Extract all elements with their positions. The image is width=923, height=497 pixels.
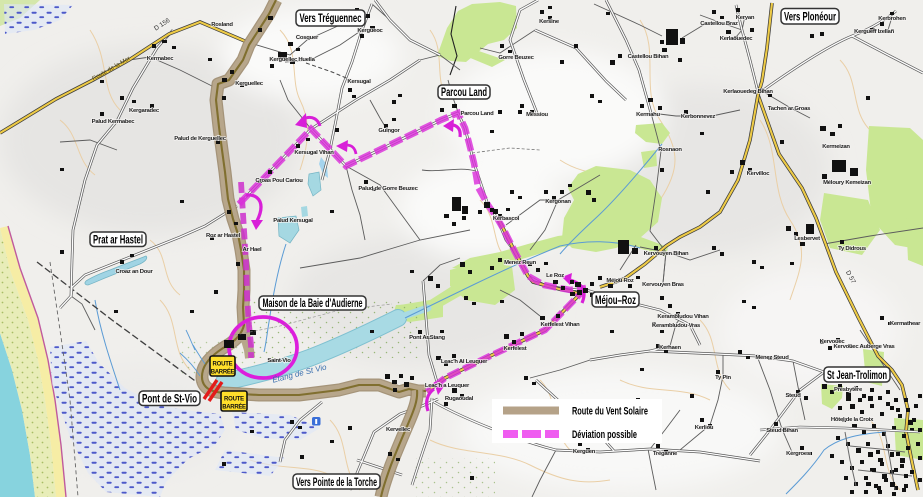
svg-text:Kervilloc: Kervilloc [747, 171, 771, 177]
svg-text:Lesbervet: Lesbervet [794, 236, 820, 242]
svg-text:Leac'h a Leuquer: Leac'h a Leuquer [425, 383, 470, 389]
svg-text:Kergroes: Kergroes [786, 451, 811, 457]
svg-text:Méjou–Roz: Méjou–Roz [595, 293, 636, 307]
svg-text:Castellou Bihan: Castellou Bihan [628, 54, 669, 60]
svg-text:Kergonan: Kergonan [545, 199, 571, 205]
svg-text:Vers Pointe de la Torche: Vers Pointe de la Torche [296, 475, 377, 489]
svg-text:Kervellec: Kervellec [386, 427, 411, 433]
svg-text:Kerfelest Vihan: Kerfelest Vihan [540, 322, 580, 328]
svg-text:Route du Vent Solaire: Route du Vent Solaire [572, 406, 648, 418]
svg-text:Menez Reun: Menez Reun [504, 260, 537, 266]
svg-text:St Jean-Trolimon: St Jean-Trolimon [827, 368, 887, 382]
svg-text:Kervouyen Bihan: Kervouyen Bihan [644, 251, 689, 257]
svg-text:Tréganne: Tréganne [653, 451, 678, 457]
svg-text:Kerlaouedeg Bihan: Kerlaouedeg Bihan [723, 89, 773, 95]
svg-text:Kersine: Kersine [539, 19, 560, 25]
svg-text:Prat ar Hastel: Prat ar Hastel [93, 233, 143, 247]
svg-text:Parcou Land: Parcou Land [461, 111, 495, 117]
svg-text:Kerambludou Vras: Kerambludou Vras [652, 323, 701, 329]
svg-text:ROUTE: ROUTE [212, 362, 232, 368]
svg-text:Steud: Steud [785, 393, 801, 399]
svg-text:Kerbascol: Kerbascol [493, 216, 520, 222]
svg-text:Palud de Gorre Beuzec: Palud de Gorre Beuzec [358, 186, 418, 192]
svg-text:Méloury Kemeizan: Méloury Kemeizan [823, 180, 871, 186]
svg-text:Croaz an Dour: Croaz an Dour [115, 269, 153, 275]
svg-text:Cosquer: Cosquer [296, 35, 319, 41]
svg-text:Palud Kermabec: Palud Kermabec [92, 119, 136, 125]
svg-text:Rugaoudal: Rugaoudal [445, 396, 474, 402]
svg-text:Kergaradec: Kergaradec [129, 108, 160, 114]
svg-text:Saint-Vio: Saint-Vio [267, 358, 291, 364]
svg-text:Messiou: Messiou [526, 112, 548, 118]
svg-text:Kermathear: Kermathear [890, 321, 921, 327]
svg-text:Kerambludou Vihan: Kerambludou Vihan [657, 314, 709, 320]
svg-text:Kermabec: Kermabec [147, 56, 174, 62]
svg-text:Menez Steud: Menez Steud [755, 355, 789, 361]
svg-text:Kerliou: Kerliou [695, 425, 714, 431]
svg-text:Rosnaon: Rosnaon [658, 147, 682, 153]
svg-text:BARRÉE: BARRÉE [211, 368, 235, 376]
svg-text:BARRÉE: BARRÉE [222, 403, 246, 411]
svg-text:Gorre Beuzec: Gorre Beuzec [498, 55, 534, 61]
svg-text:Kerbonnevez: Kerbonnevez [681, 114, 716, 120]
svg-text:Ty Pin: Ty Pin [715, 375, 731, 381]
svg-text:Méjou Roz: Méjou Roz [606, 278, 634, 284]
svg-text:Tachen ar Groas: Tachen ar Groas [768, 106, 811, 112]
svg-text:Kerguellec: Kerguellec [235, 81, 264, 87]
svg-text:Le Roz: Le Roz [546, 273, 564, 279]
svg-text:Palud Kersugal: Palud Kersugal [273, 218, 313, 224]
svg-text:Kerfelest: Kerfelest [504, 346, 527, 352]
svg-text:Pont Ar Stang: Pont Ar Stang [409, 335, 445, 341]
svg-text:Kersugal Vihan: Kersugal Vihan [294, 150, 334, 156]
svg-text:Ty Didrous: Ty Didrous [838, 246, 867, 252]
svg-text:ROUTE: ROUTE [224, 397, 244, 403]
svg-text:Kervouec Auberge Vras: Kervouec Auberge Vras [834, 344, 896, 350]
svg-text:Kermeizan: Kermeizan [822, 144, 850, 150]
svg-text:Kerhaen: Kerhaen [659, 345, 681, 351]
svg-text:Vers Plonéour: Vers Plonéour [784, 10, 836, 24]
svg-text:Ar Hael: Ar Hael [243, 247, 262, 253]
svg-text:Kerguellec Huella: Kerguellec Huella [269, 57, 315, 63]
svg-text:Steud Bihan: Steud Bihan [766, 428, 798, 434]
svg-text:Kergueoc: Kergueoc [357, 28, 383, 34]
svg-text:Kerlaouedec: Kerlaouedec [720, 36, 754, 42]
svg-text:Palud de Kerguellec: Palud de Kerguellec [174, 136, 227, 142]
svg-text:Kersugal: Kersugal [347, 79, 371, 85]
svg-text:Kerguen: Kerguen [573, 449, 596, 455]
svg-text:Déviation possible: Déviation possible [572, 429, 637, 441]
svg-text:Keryan: Keryan [736, 15, 755, 21]
svg-text:Presbytère: Presbytère [834, 387, 863, 393]
svg-text:Rosland: Rosland [211, 22, 233, 28]
svg-text:Parcou Land: Parcou Land [441, 85, 487, 99]
svg-text:Hôtel de la Croix: Hôtel de la Croix [831, 417, 874, 423]
svg-text:Roz ar Hastel: Roz ar Hastel [206, 233, 241, 239]
svg-text:Vers Tréguennec: Vers Tréguennec [300, 11, 362, 25]
svg-text:Kerbrohen: Kerbrohen [878, 16, 906, 22]
svg-text:Maison de la Baie d'Audierne: Maison de la Baie d'Audierne [263, 296, 363, 310]
svg-text:Croas Poul Cariou: Croas Poul Cariou [255, 178, 303, 184]
svg-text:Pont de St-Vio: Pont de St-Vio [142, 392, 197, 406]
svg-text:Kermahu: Kermahu [636, 112, 660, 118]
svg-text:Kervouyen Bras: Kervouyen Bras [642, 282, 685, 288]
svg-text:Guingor: Guingor [378, 128, 400, 134]
svg-text:Kergueff Izellañ: Kergueff Izellañ [854, 29, 895, 35]
svg-text:Leac'h Al Leuquer: Leac'h Al Leuquer [441, 359, 488, 365]
svg-text:Castellou Braz: Castellou Braz [700, 21, 738, 27]
